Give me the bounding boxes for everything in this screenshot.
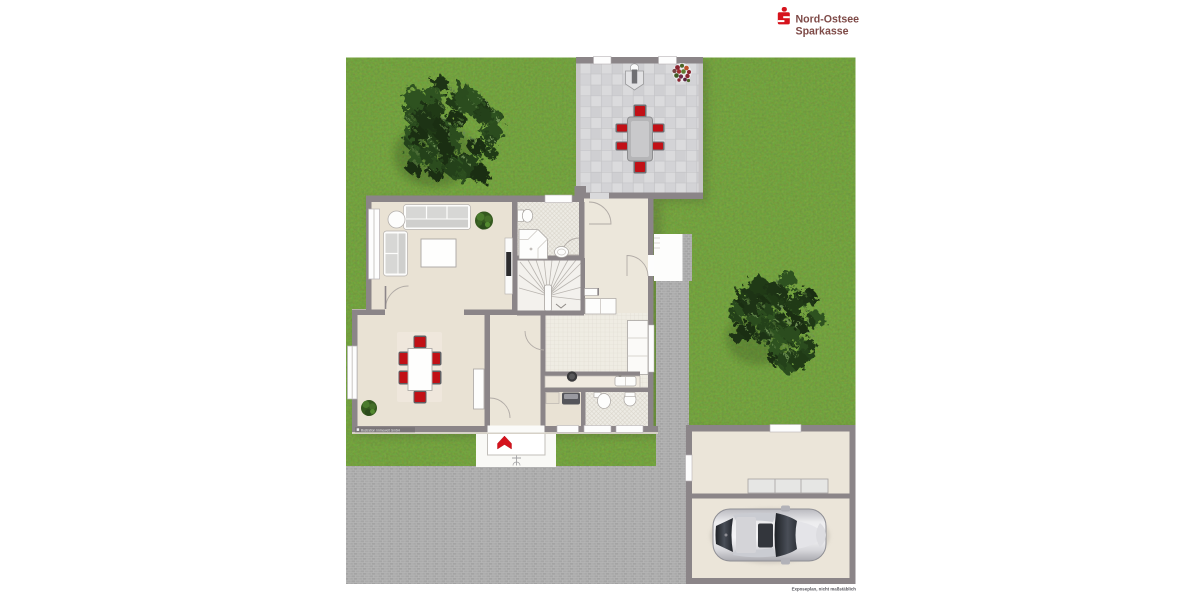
svg-text:Sparkasse: Sparkasse (796, 26, 849, 38)
svg-text:Nord-Ostsee: Nord-Ostsee (796, 14, 860, 26)
svg-text:Exposeplan, nicht maßstäblich: Exposeplan, nicht maßstäblich (792, 587, 857, 592)
svg-text:Illustration Immowelt GmbH: Illustration Immowelt GmbH (361, 428, 401, 432)
